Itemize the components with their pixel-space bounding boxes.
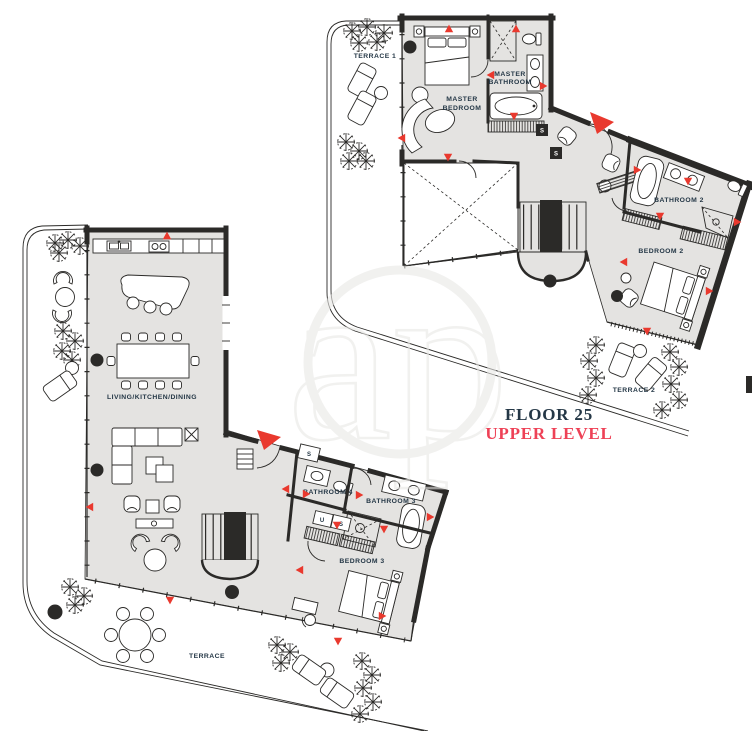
level-caption: UPPER LEVEL bbox=[485, 424, 612, 443]
sun-lounger bbox=[347, 90, 378, 127]
master-bedroom-label-2: BEDROOM bbox=[443, 105, 482, 112]
bedroom2-label: BEDROOM 2 bbox=[638, 248, 683, 255]
curved-chair bbox=[53, 310, 72, 323]
media-bench bbox=[136, 519, 173, 528]
watermark-text: ap bbox=[287, 229, 509, 489]
toilet-icon bbox=[523, 33, 542, 45]
stool bbox=[621, 273, 631, 283]
bathroom2-label: BATHROOM 2 bbox=[654, 197, 704, 204]
stool bbox=[144, 301, 156, 313]
terrace-1: TERRACE 1 bbox=[337, 18, 396, 170]
bathroom4-label: BATHROOM 4 bbox=[303, 489, 353, 496]
round-table bbox=[56, 288, 75, 307]
master-bathroom-label-2: BATHROOM bbox=[488, 79, 531, 86]
terrace-label: TERRACE bbox=[189, 653, 225, 660]
master-bathroom-label-1: MASTER bbox=[494, 71, 525, 78]
sun-lounger bbox=[319, 676, 356, 709]
terrace1-label: TERRACE 1 bbox=[354, 53, 397, 60]
outdoor-dining bbox=[105, 608, 166, 663]
plan-caption: FLOOR 25 UPPER LEVEL bbox=[485, 405, 612, 443]
floor-caption: FLOOR 25 bbox=[505, 405, 593, 424]
sun-lounger bbox=[608, 342, 637, 378]
round-table bbox=[144, 549, 166, 571]
column bbox=[48, 605, 63, 620]
coffee-table bbox=[156, 465, 173, 482]
towel-closet bbox=[488, 121, 544, 132]
column bbox=[225, 585, 239, 599]
side-table bbox=[146, 500, 159, 513]
bedroom3-label: BEDROOM 3 bbox=[339, 558, 384, 565]
edge-artifact bbox=[746, 376, 752, 393]
column bbox=[404, 41, 417, 54]
armchair bbox=[124, 496, 140, 512]
side-table bbox=[375, 87, 388, 100]
column bbox=[544, 275, 557, 288]
column bbox=[91, 464, 104, 477]
master-bedroom-label-1: MASTER bbox=[446, 96, 477, 103]
terrace2-label: TERRACE 2 bbox=[613, 387, 656, 394]
bathroom3-label: BATHROOM 3 bbox=[366, 498, 416, 505]
storage-label: S bbox=[540, 129, 544, 135]
dining-table bbox=[117, 344, 189, 378]
column bbox=[611, 290, 623, 302]
side-table bbox=[634, 345, 647, 358]
floorplan-canvas: MASTER BATHROOM MASTER BEDROOM bbox=[0, 0, 752, 731]
storage-label: S bbox=[554, 152, 558, 158]
watermark: ap bbox=[287, 229, 509, 489]
curved-chair bbox=[54, 271, 73, 284]
stool bbox=[160, 303, 172, 315]
side-table-x bbox=[185, 428, 198, 441]
stool bbox=[127, 297, 139, 309]
column bbox=[91, 354, 104, 367]
utility-label: U bbox=[320, 518, 324, 524]
living-label: LIVING/KITCHEN/DINING bbox=[107, 394, 197, 401]
terrace-loungers bbox=[291, 653, 356, 709]
armchair bbox=[164, 496, 180, 512]
floorplan-drawing: MASTER BATHROOM MASTER BEDROOM bbox=[0, 0, 752, 731]
